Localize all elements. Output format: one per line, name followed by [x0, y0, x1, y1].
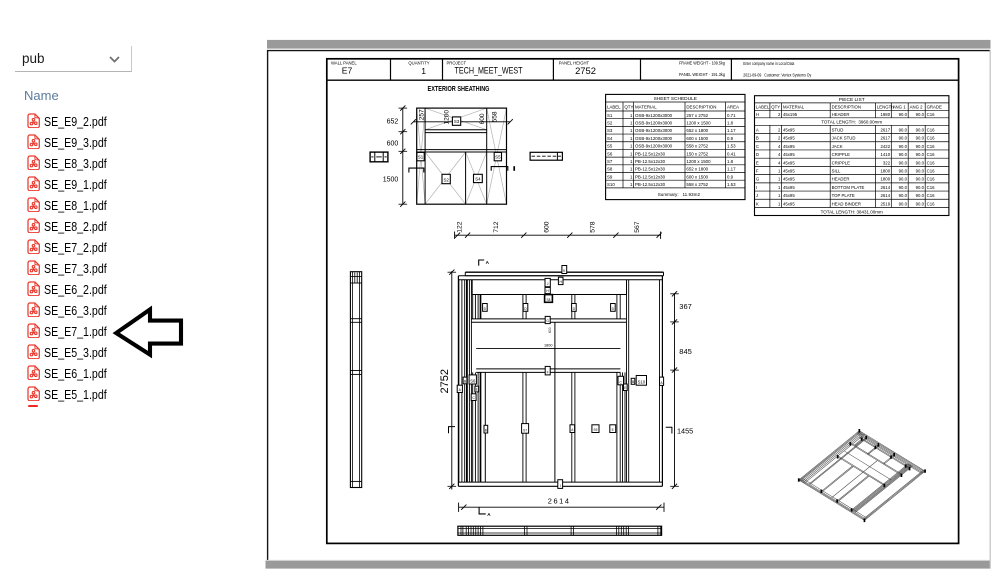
svg-text:E: E [612, 428, 614, 432]
svg-text:45x95: 45x95 [783, 160, 795, 165]
svg-text:1410: 1410 [881, 152, 891, 157]
svg-text:S1: S1 [418, 155, 424, 160]
svg-text:JACK STUD: JACK STUD [832, 136, 856, 141]
svg-text:652 x 1800: 652 x 1800 [686, 128, 708, 133]
svg-text:C16: C16 [927, 177, 935, 182]
svg-text:600 x 1500: 600 x 1500 [686, 174, 708, 179]
svg-text:Summary: 11.93m2: Summary: 11.93m2 [658, 192, 701, 197]
svg-text:90.0: 90.0 [916, 185, 925, 190]
svg-text:C16: C16 [927, 127, 935, 132]
svg-text:Enter company name in Local Da: Enter company name in Local Data [743, 61, 794, 66]
svg-text:558 x 2752: 558 x 2752 [686, 182, 708, 187]
svg-text:90.0: 90.0 [916, 127, 925, 132]
svg-text:C16: C16 [927, 136, 935, 141]
svg-text:S5: S5 [495, 155, 501, 160]
svg-text:90.0: 90.0 [899, 177, 908, 182]
svg-text:1200 x 1500: 1200 x 1500 [686, 120, 711, 125]
svg-text:I: I [756, 185, 757, 190]
svg-text:C16: C16 [927, 169, 935, 174]
svg-text:652: 652 [387, 119, 399, 126]
svg-text:558 x 2752: 558 x 2752 [686, 144, 708, 149]
svg-text:1.8: 1.8 [727, 159, 734, 164]
svg-text:HEADER: HEADER [832, 112, 850, 117]
svg-text:652 x 1800: 652 x 1800 [686, 167, 708, 172]
svg-text:1200 x 1500: 1200 x 1500 [686, 159, 711, 164]
svg-text:STUD: STUD [832, 127, 844, 132]
svg-text:600: 600 [387, 140, 399, 147]
svg-text:2617: 2617 [881, 136, 891, 141]
svg-text:ANG 2: ANG 2 [910, 105, 924, 110]
svg-text:2752: 2752 [439, 369, 451, 393]
svg-text:1.8: 1.8 [727, 120, 734, 125]
svg-text:2: 2 [778, 112, 781, 117]
svg-text:CRIPPLE: CRIPPLE [832, 152, 851, 157]
svg-text:1800: 1800 [544, 343, 552, 347]
svg-text:845: 845 [679, 347, 692, 356]
svg-text:1: 1 [630, 182, 633, 187]
svg-text:AREA: AREA [727, 105, 739, 110]
svg-text:1: 1 [421, 66, 426, 76]
svg-text:2021-09-09 Customer: Vertex: 2021-09-09 Customer: Vertex Systems Oy [743, 73, 812, 78]
svg-text:90.0: 90.0 [899, 136, 908, 141]
svg-text:OSB-9x1200x3000: OSB-9x1200x3000 [635, 136, 673, 141]
svg-text:600: 600 [479, 113, 486, 124]
svg-text:G: G [756, 177, 760, 182]
svg-text:150 x 2752: 150 x 2752 [686, 151, 708, 156]
svg-text:90.0: 90.0 [899, 160, 908, 165]
svg-text:1: 1 [630, 120, 633, 125]
svg-text:FRAME WEIGHT - 109.5kg: FRAME WEIGHT - 109.5kg [679, 60, 725, 65]
svg-text:SILL: SILL [832, 169, 841, 174]
svg-text:1: 1 [630, 128, 633, 133]
svg-text:45x95: 45x95 [783, 185, 795, 190]
svg-text:90.0: 90.0 [916, 193, 925, 198]
svg-text:S6: S6 [607, 151, 613, 156]
svg-text:90.0: 90.0 [916, 144, 925, 149]
svg-text:DESCRIPTION: DESCRIPTION [832, 105, 861, 110]
svg-text:QTY: QTY [624, 105, 633, 110]
svg-text:CRIPPLE: CRIPPLE [832, 160, 851, 165]
svg-text:1800: 1800 [881, 169, 891, 174]
svg-text:90.0: 90.0 [916, 177, 925, 182]
svg-text:B: B [485, 429, 487, 433]
svg-text:MATERIAL: MATERIAL [783, 105, 805, 110]
svg-text:E7: E7 [342, 66, 353, 76]
svg-text:OSB-9x1200x3000: OSB-9x1200x3000 [635, 113, 673, 118]
svg-text:90.0: 90.0 [916, 152, 925, 157]
svg-text:OSB-9x1200x3000: OSB-9x1200x3000 [635, 144, 673, 149]
svg-text:LABEL: LABEL [756, 105, 770, 110]
svg-text:2614: 2614 [548, 496, 571, 505]
svg-text:2752: 2752 [575, 65, 596, 76]
svg-text:90.0: 90.0 [916, 136, 925, 141]
svg-text:S7: S7 [607, 159, 613, 164]
svg-text:90.0: 90.0 [916, 201, 925, 206]
svg-text:90.0: 90.0 [899, 169, 908, 174]
svg-text:S9: S9 [593, 428, 597, 432]
svg-text:45x95: 45x95 [783, 177, 795, 182]
svg-text:90.0: 90.0 [916, 160, 925, 165]
svg-text:1800: 1800 [881, 177, 891, 182]
svg-text:2617: 2617 [881, 127, 891, 132]
svg-text:B: B [756, 136, 759, 141]
svg-text:1: 1 [630, 136, 633, 141]
svg-text:TOTAL LENGTH: 3960.00mm: TOTAL LENGTH: 3960.00mm [821, 119, 882, 124]
svg-text:257 x 2752: 257 x 2752 [686, 113, 708, 118]
svg-text:F: F [756, 169, 759, 174]
svg-text:I: I [560, 484, 561, 488]
svg-text:C16: C16 [927, 160, 935, 165]
svg-text:1: 1 [778, 169, 781, 174]
svg-text:S3: S3 [607, 128, 613, 133]
svg-text:1: 1 [778, 193, 781, 198]
svg-text:S9: S9 [607, 174, 613, 179]
svg-text:45x195: 45x195 [783, 112, 798, 117]
svg-text:90.0: 90.0 [899, 127, 908, 132]
svg-text:SHEET SCHEDULE: SHEET SCHEDULE [654, 96, 697, 102]
svg-text:C16: C16 [927, 152, 935, 157]
svg-text:600: 600 [548, 327, 552, 333]
svg-text:HEAD BINDER: HEAD BINDER [832, 201, 861, 206]
svg-text:90.0: 90.0 [899, 152, 908, 157]
svg-text:0.9: 0.9 [727, 174, 734, 179]
svg-text:S4: S4 [607, 136, 613, 141]
svg-text:578: 578 [590, 221, 597, 233]
svg-text:G: G [546, 319, 549, 323]
svg-text:PANEL WEIGHT - 191.3kg: PANEL WEIGHT - 191.3kg [679, 72, 725, 77]
svg-text:S2: S2 [443, 178, 449, 183]
svg-text:0.41: 0.41 [727, 151, 736, 156]
svg-text:2: 2 [778, 136, 781, 141]
svg-text:S10: S10 [638, 380, 646, 385]
svg-text:PIECE LIST: PIECE LIST [839, 97, 865, 103]
svg-text:1: 1 [778, 185, 781, 190]
svg-text:1200: 1200 [444, 110, 451, 125]
svg-text:45x95: 45x95 [783, 136, 795, 141]
svg-text:H: H [756, 112, 759, 117]
svg-text:PB-12.5x12x30: PB-12.5x12x30 [635, 159, 666, 164]
svg-text:BOTTOM PLATE: BOTTOM PLATE [832, 185, 865, 190]
svg-text:4: 4 [778, 144, 781, 149]
svg-text:PB-12.5x12x30: PB-12.5x12x30 [635, 151, 666, 156]
svg-text:OSB-9x1200x3000: OSB-9x1200x3000 [635, 120, 673, 125]
svg-text:GRADE: GRADE [927, 105, 942, 110]
svg-text:C16: C16 [927, 112, 935, 117]
svg-text:A: A [486, 260, 490, 265]
svg-text:QTY: QTY [771, 105, 780, 110]
svg-text:MATERIAL: MATERIAL [635, 105, 657, 110]
svg-text:C16: C16 [927, 201, 935, 206]
svg-text:45x95: 45x95 [783, 127, 795, 132]
svg-text:712: 712 [493, 221, 500, 233]
svg-text:90.0: 90.0 [916, 169, 925, 174]
svg-text:D: D [756, 152, 759, 157]
svg-text:4: 4 [778, 160, 781, 165]
svg-text:0.9: 0.9 [727, 136, 734, 141]
svg-text:1500: 1500 [383, 176, 399, 183]
svg-text:322: 322 [883, 160, 891, 165]
svg-text:TOP PLATE: TOP PLATE [832, 193, 855, 198]
svg-text:ANG 1: ANG 1 [893, 105, 907, 110]
svg-text:S7: S7 [523, 429, 527, 433]
svg-text:1.53: 1.53 [727, 182, 736, 187]
svg-text:PB-12.5x12x30: PB-12.5x12x30 [635, 174, 666, 179]
svg-text:367: 367 [679, 302, 692, 311]
svg-text:600 x 1500: 600 x 1500 [686, 136, 708, 141]
svg-text:1.17: 1.17 [727, 128, 736, 133]
svg-text:J: J [756, 193, 758, 198]
svg-text:DESCRIPTION: DESCRIPTION [686, 105, 716, 110]
svg-text:S1: S1 [607, 113, 613, 118]
svg-text:1: 1 [630, 113, 633, 118]
svg-text:A: A [756, 127, 759, 132]
svg-text:567: 567 [634, 221, 641, 233]
svg-text:QUANTITY: QUANTITY [408, 61, 429, 66]
svg-text:S4: S4 [475, 176, 481, 181]
svg-text:PB-12.5x12x30: PB-12.5x12x30 [635, 182, 666, 187]
svg-text:0.71: 0.71 [727, 113, 736, 118]
svg-text:257: 257 [418, 109, 425, 120]
svg-text:1: 1 [630, 167, 633, 172]
svg-text:1: 1 [778, 177, 781, 182]
svg-text:1: 1 [630, 151, 633, 156]
svg-text:TOTAL LENGTH: 38431.00mm: TOTAL LENGTH: 38431.00mm [821, 209, 883, 214]
svg-text:EXTERIOR SHEATHING: EXTERIOR SHEATHING [428, 84, 490, 93]
svg-text:1: 1 [630, 174, 633, 179]
svg-text:558: 558 [491, 111, 498, 122]
svg-text:90.0: 90.0 [899, 185, 908, 190]
svg-text:C16: C16 [927, 193, 935, 198]
svg-text:90.0: 90.0 [899, 112, 908, 117]
svg-text:F: F [547, 370, 549, 374]
svg-text:S3: S3 [454, 119, 460, 124]
svg-text:45x95: 45x95 [783, 193, 795, 198]
svg-text:HEADER: HEADER [832, 177, 850, 182]
svg-text:S10: S10 [607, 182, 615, 187]
svg-text:OSB-9x1200x3000: OSB-9x1200x3000 [635, 128, 673, 133]
svg-text:JACK: JACK [832, 144, 843, 149]
svg-text:E: E [756, 160, 759, 165]
svg-text:S2: S2 [607, 120, 613, 125]
svg-text:2519: 2519 [881, 201, 891, 206]
svg-text:A: A [487, 512, 491, 517]
svg-text:1: 1 [630, 159, 633, 164]
svg-text:90.0: 90.0 [899, 193, 908, 198]
svg-text:90.0: 90.0 [899, 201, 908, 206]
svg-text:45x95: 45x95 [783, 201, 795, 206]
svg-text:2614: 2614 [881, 185, 891, 190]
svg-text:45x95: 45x95 [783, 144, 795, 149]
svg-text:600: 600 [543, 221, 550, 233]
svg-text:1: 1 [778, 201, 781, 206]
svg-text:J: J [547, 282, 549, 286]
svg-text:122: 122 [457, 221, 464, 233]
svg-text:LABEL: LABEL [607, 105, 621, 110]
svg-text:1: 1 [630, 144, 633, 149]
svg-text:S5: S5 [607, 144, 613, 149]
svg-text:TECH_MEET_WEST: TECH_MEET_WEST [455, 66, 523, 76]
svg-text:S8: S8 [547, 298, 551, 302]
svg-text:1.53: 1.53 [727, 144, 736, 149]
svg-text:S6: S6 [470, 379, 476, 384]
svg-text:2: 2 [778, 127, 781, 132]
svg-text:45x95: 45x95 [783, 169, 795, 174]
svg-text:C: C [756, 144, 759, 149]
svg-text:1.17: 1.17 [727, 167, 736, 172]
svg-text:C16: C16 [927, 144, 935, 149]
svg-text:K: K [756, 201, 759, 206]
svg-text:S8: S8 [607, 167, 613, 172]
svg-text:4: 4 [778, 152, 781, 157]
svg-text:1455: 1455 [677, 426, 693, 435]
svg-text:2422: 2422 [881, 144, 891, 149]
svg-text:1980: 1980 [881, 112, 891, 117]
svg-text:45x95: 45x95 [783, 152, 795, 157]
svg-text:90.0: 90.0 [899, 144, 908, 149]
svg-text:C16: C16 [927, 185, 935, 190]
svg-text:90.0: 90.0 [916, 112, 925, 117]
svg-text:2614: 2614 [881, 193, 891, 198]
svg-text:PB-12.5x12x30: PB-12.5x12x30 [635, 167, 666, 172]
